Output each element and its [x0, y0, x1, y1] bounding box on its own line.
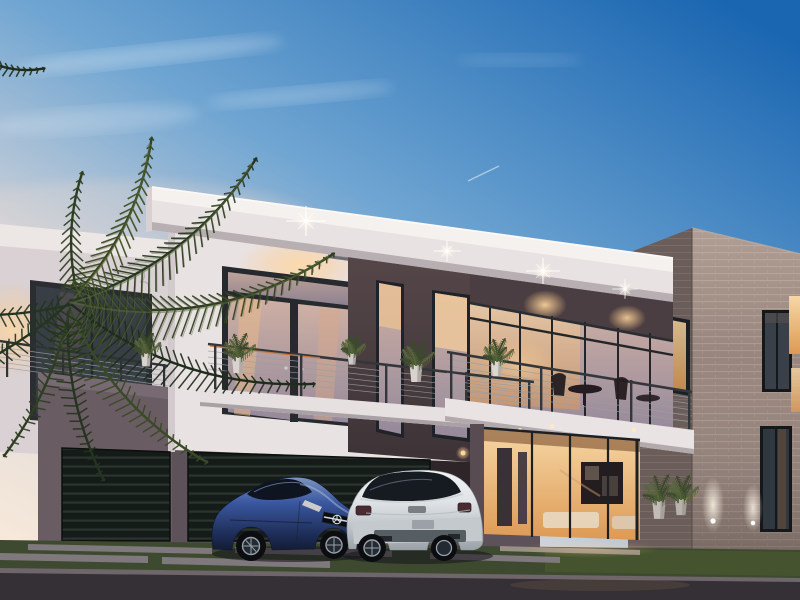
license-plate — [412, 520, 434, 529]
framed-artwork — [581, 462, 623, 504]
brick-upper-window — [762, 310, 792, 392]
architectural-render: Photorealistic dusk rendering of a moder… — [0, 0, 800, 600]
brick-ground-window — [760, 426, 792, 532]
scene-canvas: Photorealistic dusk rendering of a moder… — [0, 0, 800, 600]
entry-downlight — [632, 428, 636, 432]
entry-downlight — [550, 424, 554, 428]
garage-door-1 — [62, 448, 170, 541]
entrance-glass — [456, 424, 640, 544]
tailgate-badge — [408, 506, 426, 513]
